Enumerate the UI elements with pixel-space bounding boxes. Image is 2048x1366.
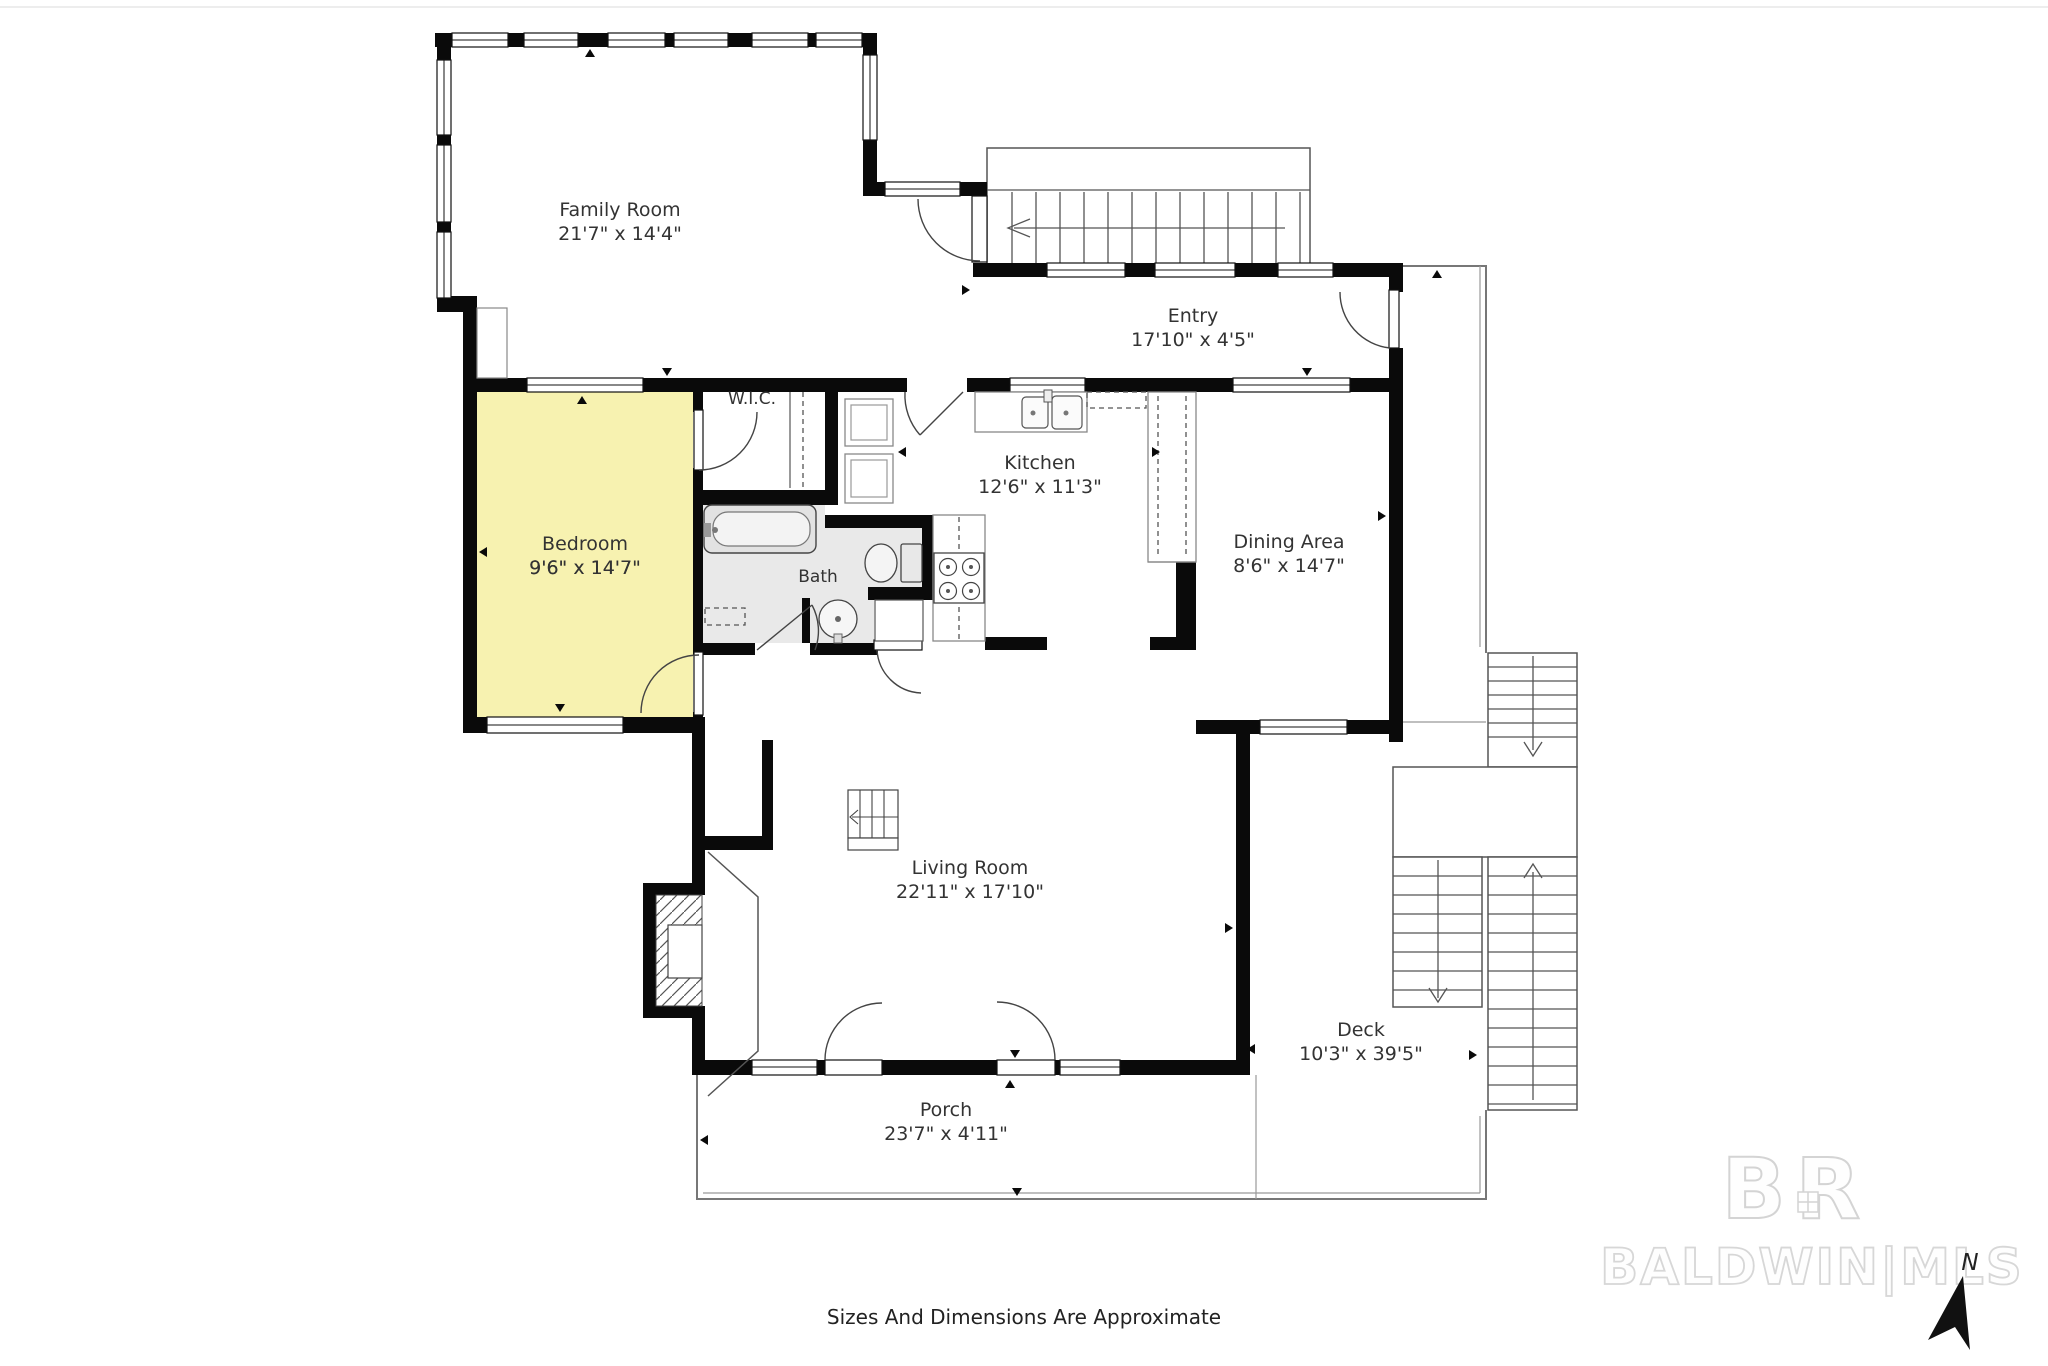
room-dims-bedroom: 9'6" x 14'7" xyxy=(529,557,641,579)
window xyxy=(1060,1060,1120,1075)
window xyxy=(437,232,451,298)
compass-north-label: N xyxy=(1961,1250,1978,1276)
page-edge-line xyxy=(0,6,2048,8)
hall-closet xyxy=(875,600,923,641)
room-dims-kitchen: 12'6" x 11'3" xyxy=(978,476,1102,498)
door-porch-right xyxy=(997,1002,1055,1075)
room-dims-entry: 17'10" x 4'5" xyxy=(1131,329,1255,351)
kitchen-sink-counter xyxy=(975,390,1146,432)
fireplace-icon xyxy=(656,895,702,1006)
room-dims-deck: 10'3" x 39'5" xyxy=(1299,1043,1423,1065)
door-porch-left xyxy=(825,1003,882,1075)
living-room-angled-bay xyxy=(708,852,758,1096)
appliance-stack xyxy=(845,399,893,503)
room-dims-porch: 23'7" x 4'11" xyxy=(884,1123,1008,1145)
door-entry-front xyxy=(1340,290,1399,348)
room-label-bedroom: Bedroom xyxy=(542,533,628,555)
window xyxy=(1047,263,1125,277)
room-label-deck: Deck xyxy=(1337,1019,1385,1041)
room-dims-dining-area: 8'6" x 14'7" xyxy=(1233,555,1345,577)
door-stair-hall xyxy=(918,196,987,262)
stairs-down-symbol xyxy=(848,790,898,850)
window xyxy=(437,60,451,135)
window xyxy=(863,55,877,140)
window xyxy=(524,33,578,47)
floor-plan-page: Family Room 21'7" x 14'4" Entry 17'10" x… xyxy=(0,0,2048,1366)
window xyxy=(674,33,728,47)
door-kitchen-entry xyxy=(905,392,963,435)
door-wic xyxy=(694,410,757,470)
kitchen-peninsula xyxy=(1148,392,1196,562)
room-label-living-room: Living Room xyxy=(912,857,1029,879)
window xyxy=(452,33,508,47)
room-label-bath: Bath xyxy=(798,567,838,587)
watermark-monogram: BR xyxy=(1722,1140,1871,1238)
room-label-porch: Porch xyxy=(920,1099,972,1121)
window xyxy=(1155,263,1235,277)
room-label-wic: W.I.C. xyxy=(728,389,776,409)
window xyxy=(1278,263,1333,277)
window xyxy=(487,717,623,733)
wic-shelving xyxy=(790,392,803,488)
bathtub-icon xyxy=(704,505,816,553)
entry-staircase xyxy=(987,148,1310,266)
room-dims-family-room: 21'7" x 14'4" xyxy=(558,223,682,245)
window xyxy=(752,33,808,47)
room-label-family-room: Family Room xyxy=(559,199,680,221)
room-label-kitchen: Kitchen xyxy=(1004,452,1075,474)
watermark: BR BALDWIN|MLS xyxy=(1600,1140,2024,1296)
room-label-dining-area: Dining Area xyxy=(1233,531,1344,553)
window xyxy=(885,182,960,196)
floor-plan-drawing: Family Room 21'7" x 14'4" Entry 17'10" x… xyxy=(0,0,2048,1366)
window xyxy=(1260,720,1347,734)
window xyxy=(816,33,862,47)
door-hall-closet xyxy=(874,640,922,693)
window xyxy=(1233,378,1350,392)
window xyxy=(527,378,643,392)
disclaimer-text: Sizes And Dimensions Are Approximate xyxy=(827,1305,1221,1329)
window xyxy=(437,145,451,222)
range-counter xyxy=(933,515,985,641)
window xyxy=(608,33,665,47)
deck-stairs-landing xyxy=(1393,767,1577,857)
room-dims-living-room: 22'11" x 17'10" xyxy=(896,881,1044,903)
family-room-niche xyxy=(477,308,507,378)
window xyxy=(752,1060,817,1075)
room-label-entry: Entry xyxy=(1168,305,1219,327)
